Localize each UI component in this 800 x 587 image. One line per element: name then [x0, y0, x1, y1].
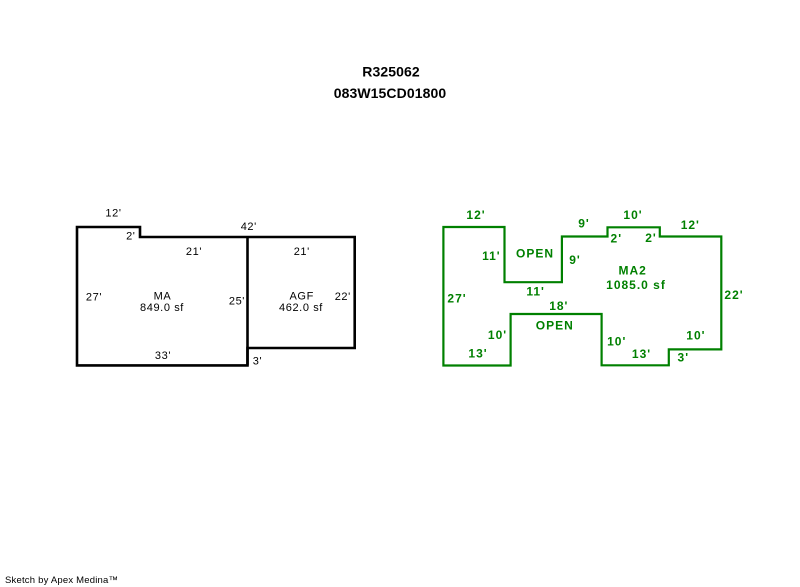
svg-text:2': 2' [645, 231, 657, 245]
svg-text:22': 22' [335, 291, 351, 303]
svg-text:10': 10' [623, 208, 642, 222]
svg-text:R325062: R325062 [362, 64, 420, 80]
svg-text:9': 9' [578, 217, 590, 231]
svg-text:462.0 sf: 462.0 sf [279, 302, 323, 314]
svg-text:13': 13' [632, 347, 651, 361]
svg-text:1085.0 sf: 1085.0 sf [606, 278, 666, 292]
svg-text:11': 11' [482, 249, 501, 263]
svg-text:22': 22' [724, 288, 743, 302]
svg-text:3': 3' [678, 351, 690, 365]
svg-text:12': 12' [466, 208, 485, 222]
svg-text:12': 12' [105, 208, 121, 220]
svg-text:27': 27' [86, 292, 102, 304]
svg-text:Sketch by Apex Medina™: Sketch by Apex Medina™ [5, 575, 118, 586]
svg-text:21': 21' [294, 246, 310, 258]
svg-text:MA: MA [154, 291, 172, 303]
svg-text:10': 10' [488, 328, 507, 342]
svg-text:9': 9' [569, 253, 581, 267]
svg-text:33': 33' [155, 350, 171, 362]
svg-text:21': 21' [186, 246, 202, 258]
svg-text:3': 3' [253, 356, 262, 368]
svg-text:OPEN: OPEN [516, 247, 554, 261]
svg-text:849.0 sf: 849.0 sf [140, 302, 184, 314]
svg-text:42': 42' [241, 221, 257, 233]
svg-text:11': 11' [526, 284, 545, 298]
svg-text:12': 12' [681, 218, 700, 232]
svg-text:OPEN: OPEN [536, 319, 574, 333]
svg-text:25': 25' [229, 296, 245, 308]
svg-text:AGF: AGF [289, 291, 313, 303]
svg-text:MA2: MA2 [619, 263, 647, 277]
svg-text:10': 10' [686, 329, 705, 343]
svg-text:27': 27' [447, 292, 466, 306]
svg-text:083W15CD01800: 083W15CD01800 [334, 85, 447, 101]
svg-text:2': 2' [126, 231, 135, 243]
svg-text:13': 13' [468, 347, 487, 361]
svg-text:10': 10' [607, 334, 626, 348]
svg-text:18': 18' [549, 299, 568, 313]
svg-text:2': 2' [611, 231, 623, 245]
